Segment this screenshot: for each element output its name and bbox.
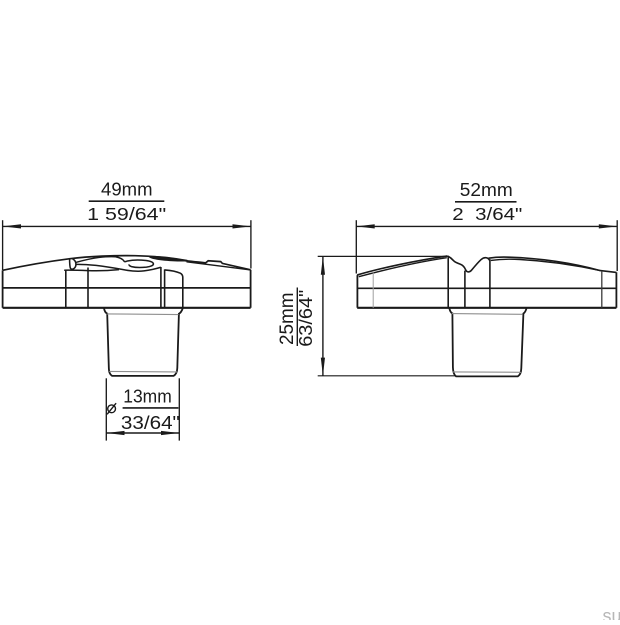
svg-text:33/64": 33/64" bbox=[121, 413, 180, 433]
svg-text:25mm: 25mm bbox=[277, 293, 298, 346]
svg-text:su: su bbox=[603, 606, 620, 620]
svg-text:13mm: 13mm bbox=[123, 386, 172, 407]
svg-text:63/64": 63/64" bbox=[296, 290, 316, 347]
svg-text:49mm: 49mm bbox=[101, 179, 153, 200]
svg-text:2 3/64": 2 3/64" bbox=[452, 204, 522, 224]
svg-text:1 59/64": 1 59/64" bbox=[87, 204, 166, 224]
svg-text:52mm: 52mm bbox=[460, 179, 513, 200]
